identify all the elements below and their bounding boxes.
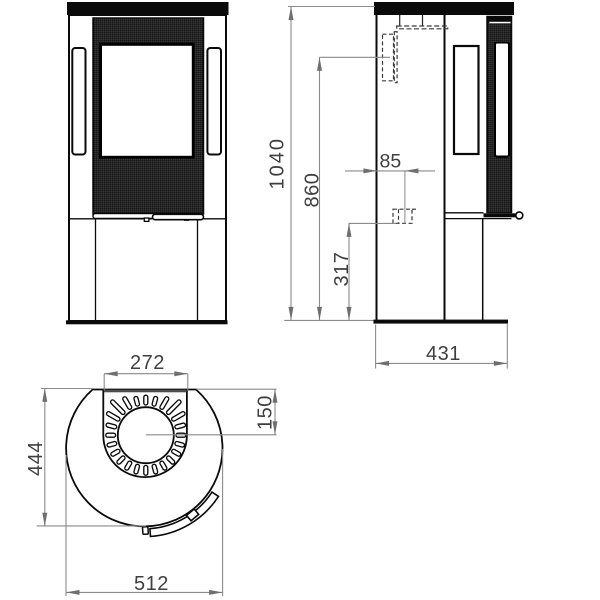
svg-text:150: 150 — [255, 395, 277, 430]
svg-text:272: 272 — [130, 352, 165, 374]
svg-text:431: 431 — [426, 343, 461, 365]
svg-text:317: 317 — [331, 252, 353, 287]
svg-text:1040: 1040 — [267, 137, 289, 190]
svg-text:512: 512 — [134, 573, 169, 595]
svg-text:860: 860 — [302, 173, 324, 208]
svg-text:444: 444 — [25, 441, 47, 476]
svg-text:85: 85 — [380, 151, 402, 173]
